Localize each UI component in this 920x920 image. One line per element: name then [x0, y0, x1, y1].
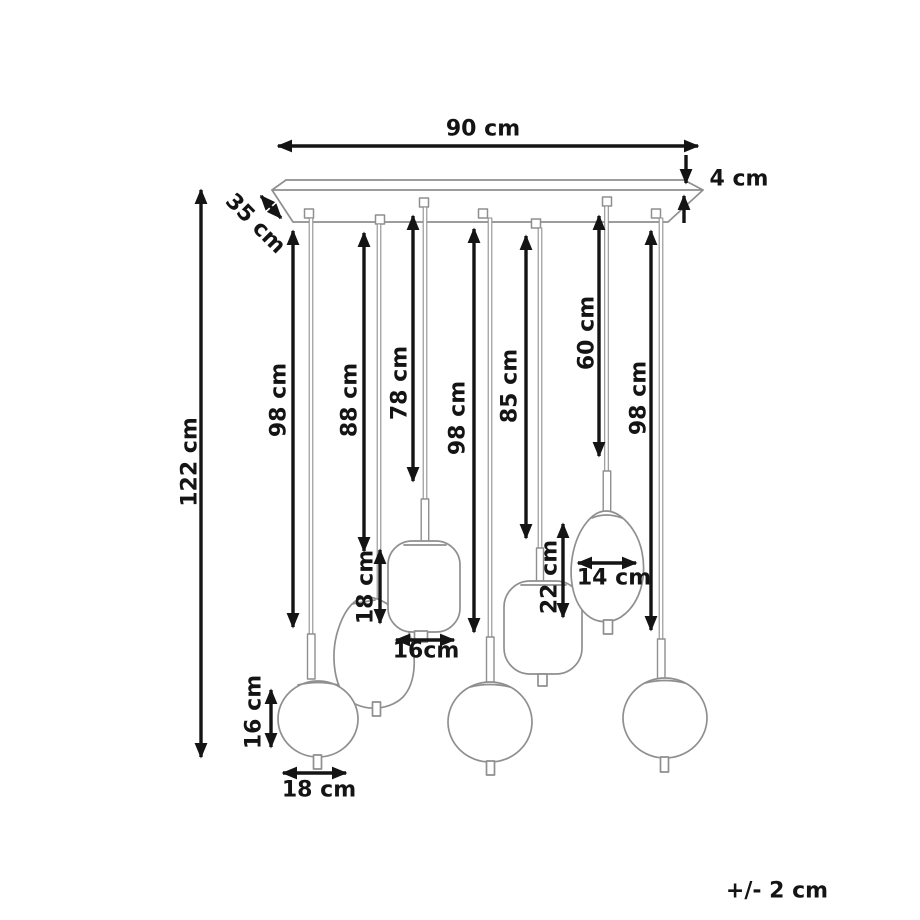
shade-neck	[603, 471, 611, 512]
label-oval-height: 22 cm	[538, 540, 563, 614]
cord	[659, 218, 663, 639]
shade-neck	[658, 639, 666, 679]
shade-stem	[373, 702, 381, 716]
shade-neck	[308, 634, 316, 679]
sphere-shade-center-holder-line	[470, 685, 510, 688]
sphere-shade-right-holder-line	[645, 681, 685, 684]
cord-gland	[376, 215, 385, 224]
label-cord-88: 88 cm	[338, 363, 363, 437]
label-round-width: 18 cm	[282, 778, 356, 803]
sphere-shade-left-holder-line	[298, 683, 338, 686]
label-cord-85: 85 cm	[498, 349, 523, 423]
label-cord-60: 60 cm	[575, 296, 600, 370]
pendant-lamp-dimension-diagram: 90 cm 4 cm 35 cm 122 cm 98 cm 88 cm 78 c…	[0, 0, 920, 920]
cube-shade-left	[388, 541, 460, 632]
sphere-shade-right	[623, 678, 707, 758]
cord-gland	[652, 209, 661, 218]
shade-stem	[661, 757, 669, 772]
sphere-shade-center	[448, 682, 532, 762]
label-cord-98-right: 98 cm	[627, 361, 652, 435]
label-round-height: 16 cm	[242, 675, 267, 749]
shade-stem	[604, 620, 613, 634]
shade-neck	[487, 637, 495, 683]
cord	[488, 218, 492, 637]
cord	[423, 207, 427, 499]
label-cord-98-center: 98 cm	[446, 381, 471, 455]
label-oval-width: 14 cm	[577, 566, 651, 591]
label-tolerance: +/- 2 cm	[726, 879, 828, 904]
sphere-shade-left	[278, 681, 358, 757]
cord	[309, 218, 313, 634]
cord-gland	[479, 209, 488, 218]
canopy-corner-left	[272, 180, 286, 190]
cord	[377, 224, 381, 601]
lamp-drawing	[272, 180, 707, 775]
cord-gland	[603, 197, 612, 206]
shade-stem	[538, 674, 547, 686]
diagram-canvas: 90 cm 4 cm 35 cm 122 cm 98 cm 88 cm 78 c…	[0, 0, 920, 920]
label-cube-width: 16cm	[393, 639, 460, 664]
cord-gland	[420, 198, 429, 207]
cord-gland	[532, 219, 541, 228]
cord	[605, 206, 609, 471]
cord-gland	[305, 209, 314, 218]
shade-neck	[421, 499, 429, 542]
shade-stem	[314, 755, 322, 769]
cord	[538, 228, 542, 548]
label-canopy-width: 90 cm	[446, 117, 520, 142]
shade-stem	[487, 761, 495, 775]
label-cord-98-left: 98 cm	[267, 363, 292, 437]
label-overall-height: 122 cm	[178, 417, 203, 507]
label-cord-78: 78 cm	[388, 346, 413, 420]
label-cube-height: 18 cm	[354, 550, 379, 624]
label-canopy-thickness: 4 cm	[710, 167, 769, 192]
dimension-labels: 90 cm 4 cm 35 cm 122 cm 98 cm 88 cm 78 c…	[178, 117, 828, 904]
